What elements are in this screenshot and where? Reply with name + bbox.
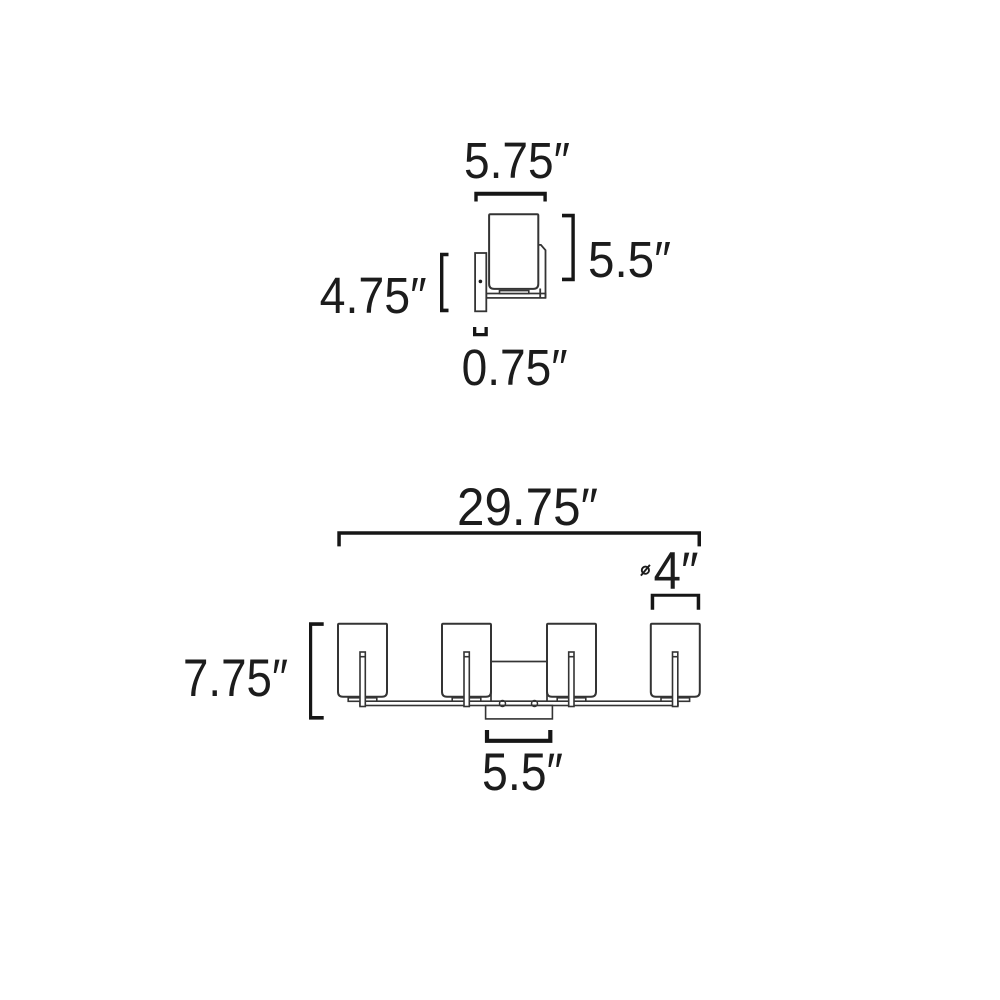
svg-text:5.75″: 5.75″ [464,132,570,189]
svg-text:4″: 4″ [654,542,699,601]
svg-text:5.5″: 5.5″ [588,231,671,288]
svg-text:7.75″: 7.75″ [183,649,288,708]
svg-text:0.75″: 0.75″ [462,339,568,396]
svg-text:29.75″: 29.75″ [457,478,598,537]
svg-text:5.5″: 5.5″ [482,743,563,802]
svg-text:4.75″: 4.75″ [320,267,427,324]
